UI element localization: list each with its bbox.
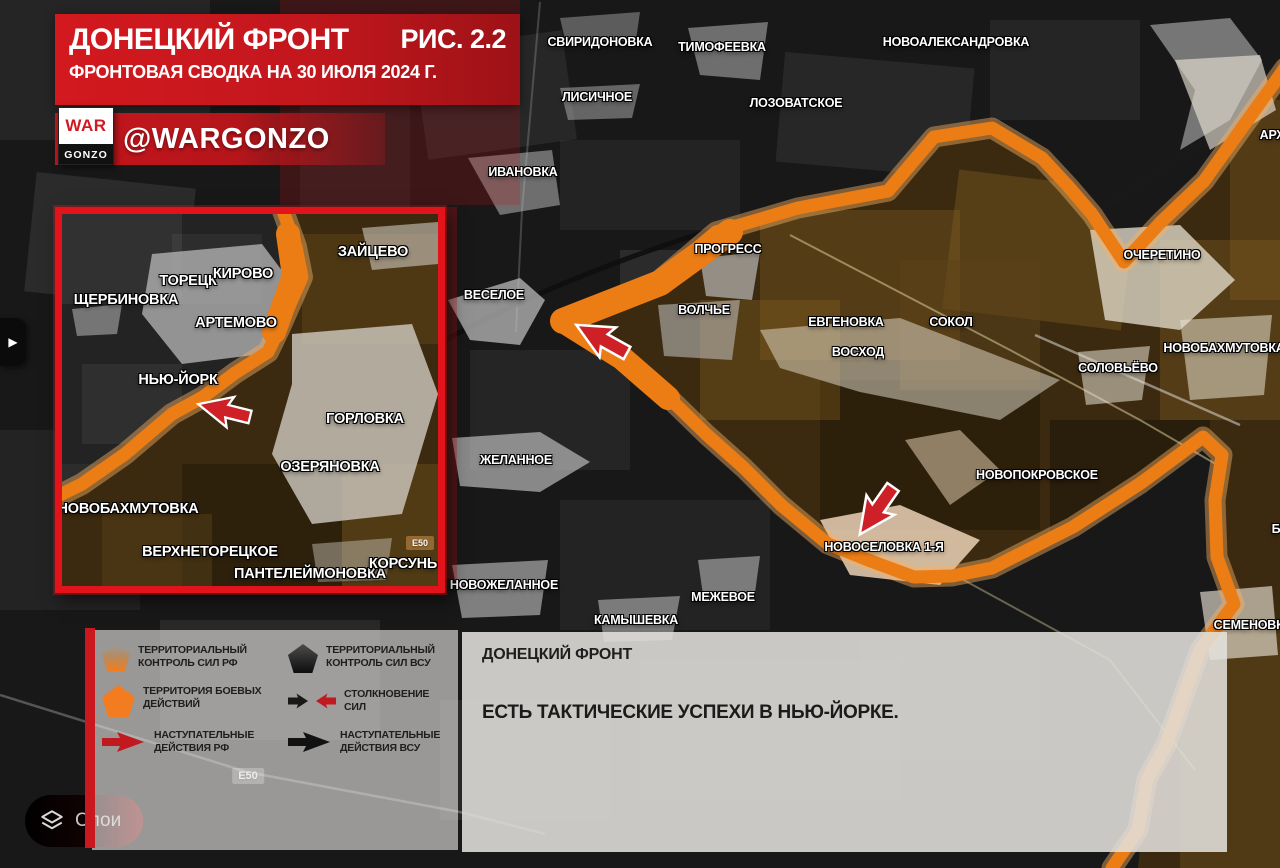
map-label: ПРОГРЕСС xyxy=(694,242,761,256)
legend-label: ТЕРРИТОРИАЛЬНЫЙ КОНТРОЛЬ СИЛ ВСУ xyxy=(326,644,435,670)
header-banner: ДОНЕЦКИЙ ФРОНТ РИС. 2.2 ФРОНТОВАЯ СВОДКА… xyxy=(55,14,520,105)
map-label: ЗАЙЦЕВО xyxy=(338,244,408,260)
figure-number: РИС. 2.2 xyxy=(401,24,506,55)
wargonzo-logo-war: WAR xyxy=(59,108,113,146)
map-label: НОВОБАХМУТОВКА xyxy=(1163,341,1280,355)
map-label: ЩЕРБИНОВКА xyxy=(74,292,179,308)
map-label: СОЛОВЬЁВО xyxy=(1078,361,1158,375)
header-subtitle: ФРОНТОВАЯ СВОДКА НА 30 ИЮЛЯ 2024 Г. xyxy=(69,62,506,83)
map-label: ЖЕЛАННОЕ xyxy=(480,453,552,467)
legend-panel: ТЕРРИТОРИАЛЬНЫЙ КОНТРОЛЬ СИЛ РФ ТЕРРИТОР… xyxy=(92,630,458,850)
wargonzo-handle: @WARGONZO xyxy=(123,123,330,156)
legend-item: НАСТУПАТЕЛЬНЫЕ ДЕЙСТВИЯ РФ xyxy=(102,729,282,755)
wargonzo-logo: WAR GONZO xyxy=(58,107,114,165)
map-label: НОВОПОКРОВСКОЕ xyxy=(976,468,1098,482)
pentagon-rf-control-icon xyxy=(102,644,130,671)
map-label: ПАНТЕЛЕЙМОНОВКА xyxy=(234,566,386,582)
legend-label: НАСТУПАТЕЛЬНЫЕ ДЕЙСТВИЯ РФ xyxy=(154,729,254,755)
legend-item: ТЕРРИТОРИАЛЬНЫЙ КОНТРОЛЬ СИЛ ВСУ xyxy=(288,644,448,673)
legend-label: ТЕРРИТОРИЯ БОЕВЫХ ДЕЙСТВИЙ xyxy=(143,685,262,711)
map-label: МЕЖЕВОЕ xyxy=(691,590,755,604)
legend-label: НАСТУПАТЕЛЬНЫЕ ДЕЙСТВИЯ ВСУ xyxy=(340,729,440,755)
map-label: АРТЕМОВО xyxy=(195,315,277,331)
map-label: НЬЮ-ЙОРК xyxy=(138,372,217,388)
report-box: ДОНЕЦКИЙ ФРОНТ ЕСТЬ ТАКТИЧЕСКИЕ УСПЕХИ В… xyxy=(462,632,1227,852)
map-label: КАМЫШЕВКА xyxy=(594,613,678,627)
map-label: ЛОЗОВАТСКОЕ xyxy=(750,96,843,110)
legend-item: ТЕРРИТОРИЯ БОЕВЫХ ДЕЙСТВИЙ xyxy=(102,685,282,717)
map-label: НОВОЖЕЛАННОЕ xyxy=(450,578,558,592)
pentagon-vsu-control-icon xyxy=(288,644,318,673)
rf-advance-arrow-icon xyxy=(102,731,146,753)
map-label: СОКОЛ xyxy=(929,315,972,329)
wargonzo-logo-gonzo: GONZO xyxy=(59,146,113,164)
wargonzo-strip: WAR GONZO @WARGONZO xyxy=(55,113,385,165)
map-label: СЕМЕНОВКА xyxy=(1214,618,1280,632)
map-label: ТОРЕЦК xyxy=(159,273,216,289)
red-accent-strip xyxy=(85,628,95,848)
sidebar-expand-tab[interactable]: ▶ xyxy=(0,318,26,366)
layers-icon xyxy=(39,808,65,834)
report-title: ДОНЕЦКИЙ ФРОНТ xyxy=(482,646,1207,664)
map-label: ВОЛЧЬЕ xyxy=(678,303,730,317)
map-viewport: СВИРИДОНОВКА ТИМОФЕЕВКА НОВОАЛЕКСАНДРОВК… xyxy=(0,0,1280,868)
map-label: НОВОБАХМУТОВКА xyxy=(57,501,198,517)
map-label: НОВОСЕЛОВКА 1-Я xyxy=(824,540,943,554)
page-title: ДОНЕЦКИЙ ФРОНТ xyxy=(69,24,349,56)
map-label: ВЕСЕЛОЕ xyxy=(464,288,524,302)
map-label: СВИРИДОНОВКА xyxy=(547,35,652,49)
map-label: КОРСУНЬ xyxy=(369,556,437,572)
map-label: ВОСХОД xyxy=(832,345,884,359)
map-label: АРХ xyxy=(1260,128,1280,142)
report-message: ЕСТЬ ТАКТИЧЕСКИЕ УСПЕХИ В НЬЮ-ЙОРКЕ. xyxy=(482,702,1207,724)
map-label: ОЗЕРЯНОВКА xyxy=(280,459,379,475)
road-badge-e50-inset: E50 xyxy=(406,536,434,550)
map-label: ИВАНОВКА xyxy=(488,165,557,179)
legend-label: СТОЛКНОВЕНИЕ СИЛ xyxy=(344,688,448,714)
pentagon-combat-zone-icon xyxy=(102,685,135,717)
legend-item: СТОЛКНОВЕНИЕ СИЛ xyxy=(288,685,448,717)
map-label: ЕВГЕНОВКА xyxy=(808,315,883,329)
map-label: ОЧЕРЕТИНО xyxy=(1123,248,1200,262)
map-label: КИРОВО xyxy=(213,266,273,282)
legend-item: НАСТУПАТЕЛЬНЫЕ ДЕЙСТВИЯ ВСУ xyxy=(288,729,448,755)
map-label: ВЕРХНЕТОРЕЦКОЕ xyxy=(142,544,278,560)
clash-arrows-icon xyxy=(288,691,336,711)
legend-label: ТЕРРИТОРИАЛЬНЫЙ КОНТРОЛЬ СИЛ РФ xyxy=(138,644,247,670)
inset-map: ЗАЙЦЕВО ТОРЕЦК КИРОВО ЩЕРБИНОВКА АРТЕМОВ… xyxy=(55,207,445,593)
vsu-advance-arrow-icon xyxy=(288,731,332,753)
map-label: ЛИСИЧНОЕ xyxy=(562,90,632,104)
map-label: ГОРЛОВКА xyxy=(326,411,404,427)
legend-item: ТЕРРИТОРИАЛЬНЫЙ КОНТРОЛЬ СИЛ РФ xyxy=(102,644,282,673)
map-label: ТИМОФЕЕВКА xyxy=(678,40,766,54)
expand-arrow-icon: ▶ xyxy=(8,335,17,349)
map-label: Б xyxy=(1272,522,1280,536)
map-label: НОВОАЛЕКСАНДРОВКА xyxy=(883,35,1029,49)
